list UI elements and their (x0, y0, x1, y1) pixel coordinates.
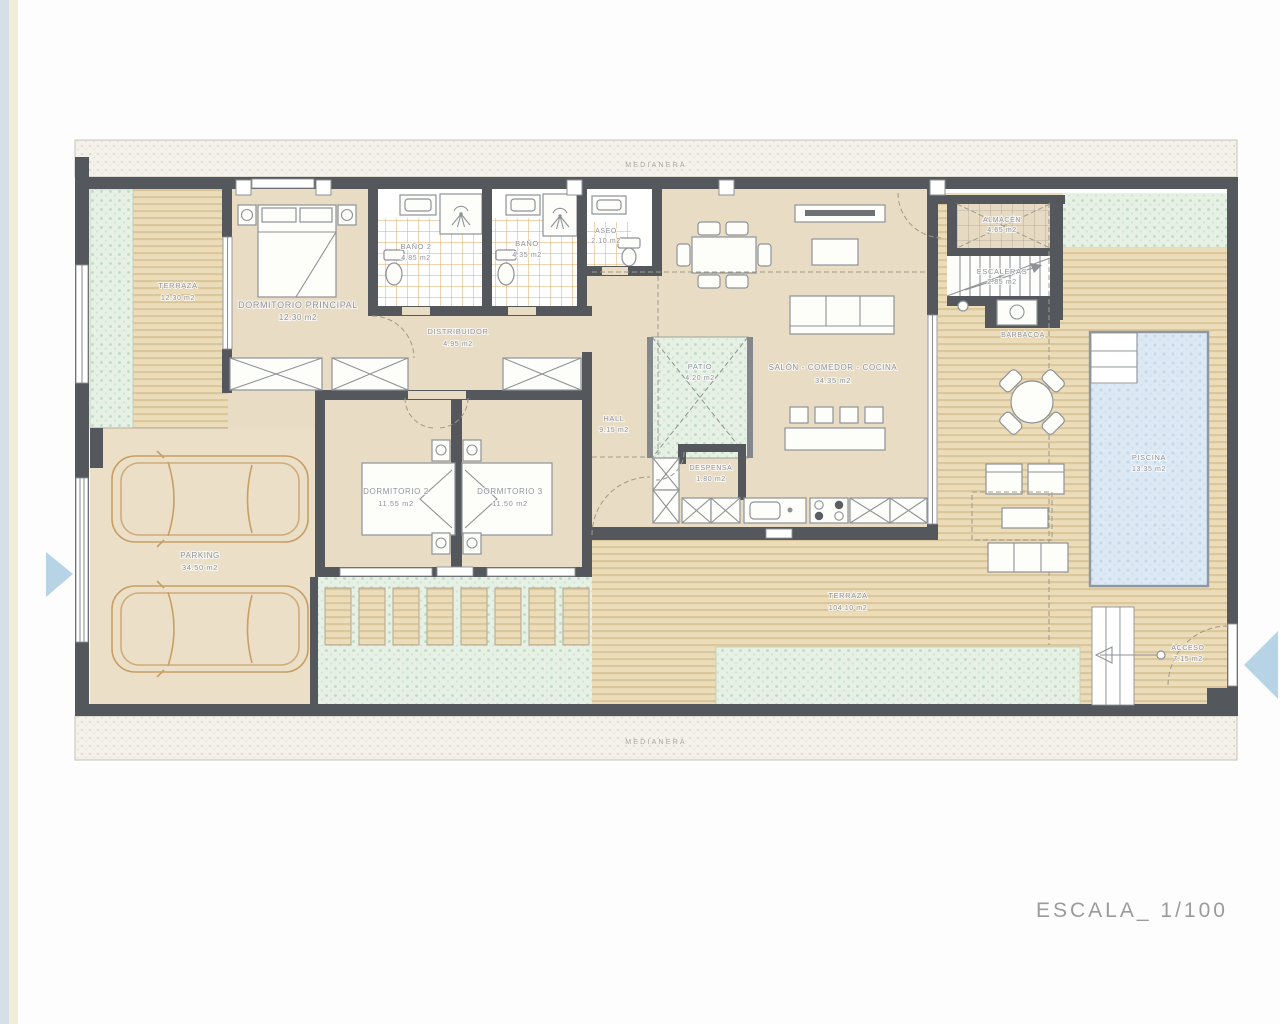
terraza-main-area: 104.10 m2 (829, 605, 867, 612)
garden-top-right (1063, 193, 1227, 247)
distribuidor-label: DISTRIBUIDOR (428, 327, 489, 336)
terraza-main-label: TERRAZA (828, 591, 867, 600)
party-wall-top: MEDIANERA (75, 140, 1237, 177)
bano2-area: 4.85 m2 (401, 255, 431, 262)
hall-area: 9.15 m2 (599, 427, 629, 434)
glass-door-salon (928, 315, 937, 524)
floor-plan-page: MEDIANERA MEDIANERA PISCINA 13.35 m2 (0, 0, 1280, 1024)
aseo-label: ASEO (595, 228, 617, 235)
despensa-area: 1.80 m2 (696, 476, 726, 483)
terraza-left-area: 12.30 m2 (161, 295, 195, 302)
bano-label: BAÑO (515, 239, 539, 248)
aseo-area: 2.10 m2 (591, 238, 621, 245)
garden-bottom-center (716, 647, 1080, 705)
room-bano: BAÑO 4.35 m2 (492, 189, 577, 306)
window-terraza-dorm (223, 237, 232, 349)
salon-label: SALÓN - COMEDOR - COCINA (769, 363, 898, 372)
kitchen-counter (682, 498, 927, 523)
bano-area: 4.35 m2 (512, 252, 542, 259)
dormitorio-principal-area: 12.30 m2 (279, 313, 317, 322)
scale-label: ESCALA_ 1/100 (1036, 899, 1228, 922)
page-edge-strip-cream (9, 0, 18, 1024)
sofa (790, 296, 894, 334)
escaleras-area: 2.85 m2 (987, 279, 1017, 286)
medianera-top-label: MEDIANERA (625, 162, 686, 169)
despensa-label: DESPENSA (690, 465, 733, 472)
room-aseo: ASEO 2.10 m2 (587, 189, 652, 266)
party-wall-bottom: MEDIANERA (75, 716, 1237, 760)
hall-label: HALL (603, 414, 624, 423)
salon-area: 34.35 m2 (815, 376, 851, 385)
distribuidor-area: 4.95 m2 (443, 341, 473, 348)
escaleras-label: ESCALERAS (977, 267, 1027, 276)
entry-door-right (1228, 624, 1237, 686)
room-bano2: BAÑO 2 4.85 m2 (378, 189, 482, 306)
garage-door-left (76, 478, 88, 642)
room-patio: PATIO 4.20 m2 (647, 337, 753, 458)
parking-label: PARKING (180, 551, 220, 560)
floor-plan-drawing: MEDIANERA MEDIANERA PISCINA 13.35 m2 (0, 0, 1280, 1024)
dormitorio2-label: DORMITORIO 2 (363, 487, 429, 496)
dormitorio3-label: DORMITORIO 3 (477, 487, 543, 496)
garden-strip-left (90, 189, 133, 428)
room-piscina: PISCINA 13.35 m2 (1090, 332, 1208, 586)
patio-area: 4.20 m2 (685, 375, 715, 382)
kitchen-sink (744, 498, 806, 523)
dormitorio3-area: 11.50 m2 (492, 499, 528, 508)
page-edge-strip-blue (0, 0, 9, 1024)
almacen-area: 4.65 m2 (987, 227, 1017, 234)
barbacoa-label: BARBACOA (1001, 332, 1045, 339)
terraza-left-label: TERRAZA (158, 281, 197, 290)
piscina-area: 13.35 m2 (1132, 466, 1166, 473)
patio-label: PATIO (688, 362, 712, 371)
kitchen-stove (810, 498, 848, 523)
nav-arrow-left-icon[interactable] (46, 552, 73, 597)
bano2-label: BAÑO 2 (400, 242, 431, 251)
room-almacen: ALMACÉN 4.65 m2 (957, 204, 1050, 248)
deck-terraza-left (133, 189, 228, 428)
window-left-wall (76, 265, 88, 383)
tv-cabinet (812, 239, 858, 265)
parking-area: 34.50 m2 (182, 563, 218, 572)
acceso-area: 7.15 m2 (1173, 656, 1203, 663)
piscina-label: PISCINA (1132, 453, 1166, 462)
dormitorio2-area: 11.55 m2 (378, 499, 414, 508)
medianera-bottom-label: MEDIANERA (625, 739, 686, 746)
acceso-label: ACCESO (1171, 645, 1204, 652)
bed-principal (258, 205, 336, 297)
sideboard (795, 205, 885, 222)
nav-arrow-right-icon[interactable] (1244, 631, 1278, 699)
dormitorio-principal-label: DORMITORIO PRINCIPAL (238, 300, 358, 310)
almacen-label: ALMACÉN (983, 215, 1021, 224)
